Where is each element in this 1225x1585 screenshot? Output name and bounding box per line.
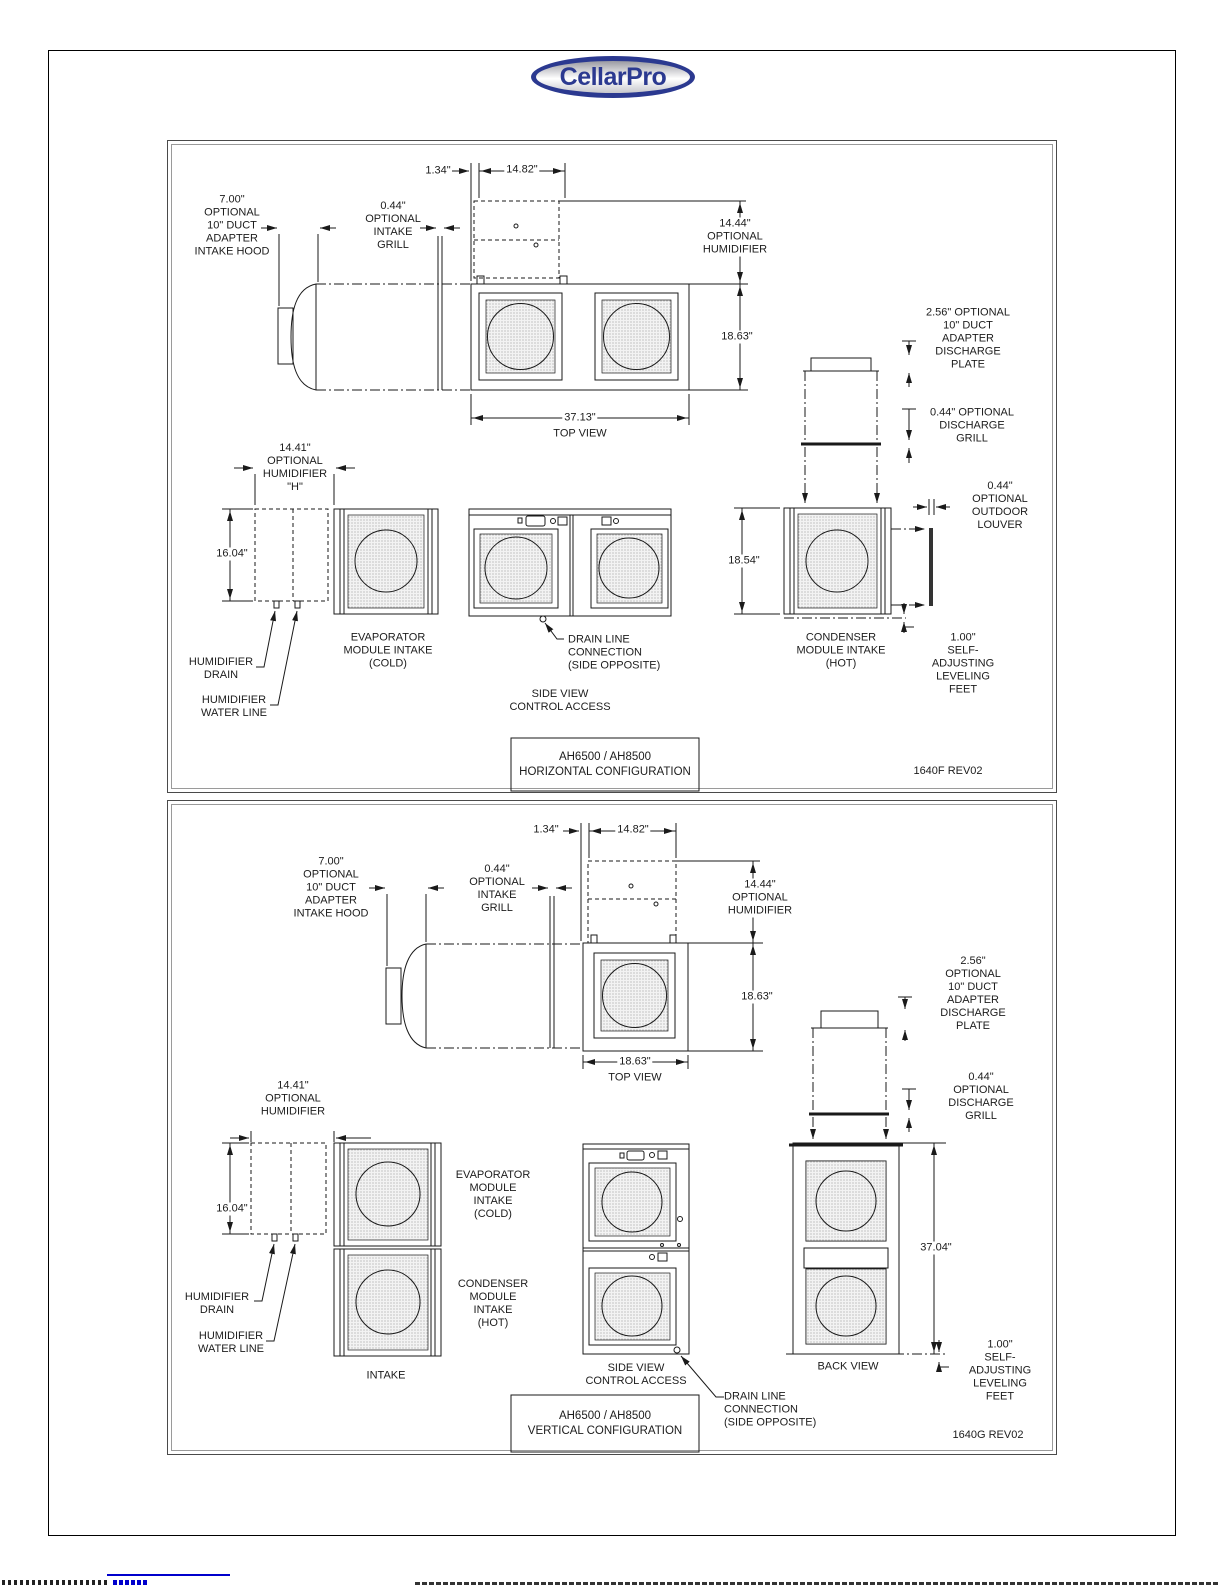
doc-number: 1640G REV02 (953, 1429, 1024, 1441)
dim-label-gap: 1.34" (425, 165, 450, 178)
label-humidifier-water: HUMIDIFIER WATER LINE (198, 1330, 264, 1356)
label-leveling-feet: 1.00" SELF-ADJUSTING LEVELING FEET (969, 1339, 1031, 1404)
label-humidifier-side: 14.41" OPTIONAL HUMIDIFIER (259, 1080, 327, 1119)
cutoff-link-fragment (113, 1580, 148, 1585)
label-humidifier-drain: HUMIDIFIER DRAIN (189, 656, 253, 682)
title-block: AH6500 / AH8500 VERTICAL CONFIGURATION (511, 1395, 699, 1452)
label-discharge-grill: 0.44" OPTIONAL DISCHARGE GRILL (944, 1071, 1019, 1123)
logo-text: CellarPro (560, 63, 667, 92)
label-intake-hood: 7.00" OPTIONAL 10" DUCT ADAPTER INTAKE H… (294, 856, 369, 921)
label-discharge-plate: 2.56" OPTIONAL 10" DUCT ADAPTER DISCHARG… (926, 307, 1010, 372)
dim-label-stack-height: 37.04" (918, 1242, 953, 1255)
vertical-configuration-panel: 1.34" 14.82" 7.00" OPTIONAL 10" DUCT ADA… (167, 800, 1057, 1455)
dim-label-gap: 1.34" (533, 824, 558, 837)
dim-label-unit-width: 18.63" (617, 1056, 652, 1069)
label-leveling-feet: 1.00" SELF-ADJUSTING LEVELING FEET (917, 632, 1010, 697)
label-back-view: BACK VIEW (817, 1361, 878, 1374)
doc-number: 1640F REV02 (913, 765, 982, 777)
cutoff-text-fragment-left (2, 1580, 110, 1585)
label-side-view: SIDE VIEW CONTROL ACCESS (585, 1362, 686, 1388)
label-discharge-grill: 0.44" OPTIONAL DISCHARGE GRILL (930, 407, 1014, 446)
label-intake-hood: 7.00" OPTIONAL 10" DUCT ADAPTER INTAKE H… (195, 194, 270, 259)
drawing-sheet: CellarPro (0, 0, 1225, 1585)
dim-label-humidifier-height: 16.04" (214, 548, 249, 561)
cutoff-hyperlink-underline (107, 1574, 230, 1576)
label-discharge-plate: 2.56" OPTIONAL 10" DUCT ADAPTER DISCHARG… (932, 955, 1015, 1033)
dim-label-condenser-height: 18.54" (726, 555, 761, 568)
label-humidifier-side: 14.41" OPTIONAL HUMIDIFIER "H" (261, 442, 329, 494)
label-humidifier-water: HUMIDIFIER WATER LINE (201, 694, 267, 720)
label-top-view: TOP VIEW (553, 428, 606, 441)
label-outdoor-louver: 0.44" OPTIONAL OUTDOOR LOUVER (972, 480, 1028, 532)
label-drain-line: DRAIN LINE CONNECTION (SIDE OPPOSITE) (724, 1391, 816, 1430)
horizontal-configuration-panel: 1.34" 14.82" 7.00" OPTIONAL 10" DUCT ADA… (167, 140, 1057, 793)
dim-label-humidifier-width: 14.82" (504, 164, 539, 177)
dim-label-unit-depth: 18.63" (739, 991, 774, 1004)
dim-label-unit-width: 37.13" (562, 412, 597, 425)
label-drain-line: DRAIN LINE CONNECTION (SIDE OPPOSITE) (568, 634, 660, 673)
label-humidifier-drain: HUMIDIFIER DRAIN (185, 1291, 249, 1317)
dim-label-unit-depth: 18.63" (719, 331, 754, 344)
label-evaporator-intake: EVAPORATOR MODULE INTAKE (COLD) (456, 1169, 531, 1221)
label-humidifier-top: 14.44" OPTIONAL HUMIDIFIER (726, 879, 794, 918)
label-condenser-intake: CONDENSER MODULE INTAKE (HOT) (796, 632, 885, 671)
label-top-view: TOP VIEW (608, 1072, 661, 1085)
label-side-view: SIDE VIEW CONTROL ACCESS (509, 688, 610, 714)
label-intake-grill: 0.44" OPTIONAL INTAKE GRILL (469, 863, 525, 915)
dim-label-humidifier-width: 14.82" (615, 824, 650, 837)
label-humidifier-top: 14.44" OPTIONAL HUMIDIFIER (701, 218, 769, 257)
cellarpro-logo: CellarPro (531, 56, 695, 98)
label-intake-grill: 0.44" OPTIONAL INTAKE GRILL (365, 200, 421, 252)
label-condenser-intake: CONDENSER MODULE INTAKE (HOT) (458, 1278, 528, 1330)
label-evaporator-intake: EVAPORATOR MODULE INTAKE (COLD) (343, 632, 432, 671)
title-block: AH6500 / AH8500 HORIZONTAL CONFIGURATION (511, 738, 699, 791)
dim-label-humidifier-height: 16.04" (214, 1203, 249, 1216)
label-intake: INTAKE (367, 1370, 406, 1383)
